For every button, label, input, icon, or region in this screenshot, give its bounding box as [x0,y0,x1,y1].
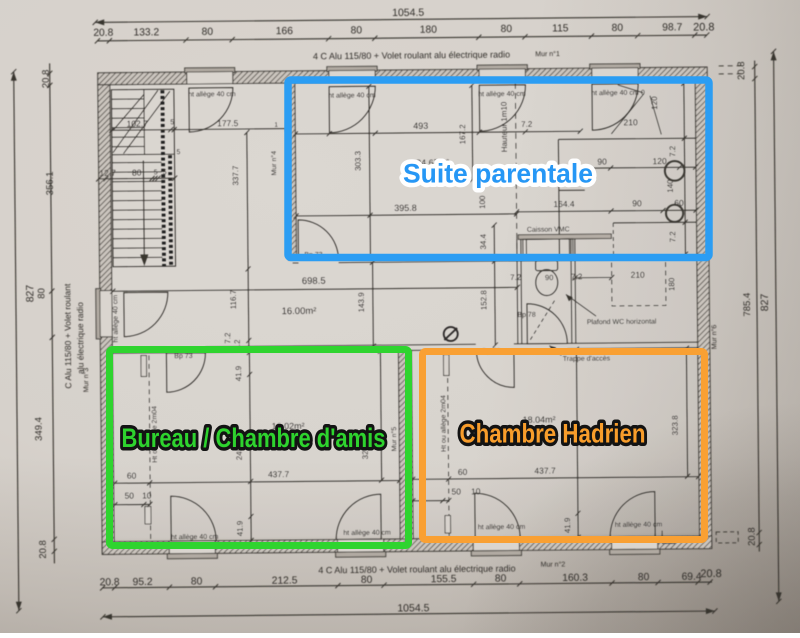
svg-text:12.7: 12.7 [99,168,116,178]
svg-text:Hauteur 1m10: Hauteur 1m10 [499,101,508,152]
svg-text:Mur n°5: Mur n°5 [390,427,398,452]
svg-text:120: 120 [652,156,667,166]
svg-text:395.8: 395.8 [394,203,417,213]
svg-text:ht allège 40 cm: ht allège 40 cm [591,90,639,97]
svg-text:alu électrique radio: alu électrique radio [75,302,86,374]
svg-text:167.2: 167.2 [458,124,467,145]
svg-text:60: 60 [127,471,137,481]
svg-text:102.7: 102.7 [127,118,149,128]
svg-text:80: 80 [36,288,47,299]
svg-text:80: 80 [351,25,363,36]
svg-text:Mur n°4: Mur n°4 [270,151,278,176]
svg-text:80: 80 [191,576,203,587]
svg-text:Mur n°2: Mur n°2 [541,560,566,568]
svg-text:20.8: 20.8 [693,21,715,33]
svg-text:437.7: 437.7 [268,469,290,479]
svg-text:Trappe d'accès: Trappe d'accès [563,355,611,362]
svg-text:ht allège 40 cm: ht allège 40 cm [188,91,236,98]
svg-text:34.4: 34.4 [479,233,488,249]
svg-text:80: 80 [495,573,507,584]
svg-text:356.1: 356.1 [45,171,56,195]
svg-text:7.2: 7.2 [668,231,677,243]
svg-text:5: 5 [154,169,158,176]
svg-text:155.5: 155.5 [431,574,457,585]
svg-text:323.8: 323.8 [671,415,680,436]
svg-text:95.2: 95.2 [133,577,153,588]
svg-text:50: 50 [451,486,461,496]
svg-text:303.3: 303.3 [353,150,362,171]
svg-text:7.2: 7.2 [223,332,232,344]
svg-text:80: 80 [202,27,214,38]
svg-text:180: 180 [420,25,438,36]
svg-text:493: 493 [413,121,428,131]
svg-text:4 C Alu 115/80 + Volet roulant: 4 C Alu 115/80 + Volet roulant alu élect… [313,49,510,61]
svg-text:ht allège 40 cm: ht allège 40 cm [615,521,663,528]
svg-text:1: 1 [274,122,278,129]
svg-text:90: 90 [597,157,607,167]
svg-text:Suite parentale: Suite parentale [403,159,593,189]
svg-text:210: 210 [623,117,638,127]
svg-text:80: 80 [132,167,142,177]
svg-text:20.8: 20.8 [41,70,52,89]
svg-text:69.4: 69.4 [682,572,702,583]
svg-text:C Alu 115/80 + Volet roulant: C Alu 115/80 + Volet roulant [62,283,73,389]
svg-text:Bp 73: Bp 73 [174,353,192,360]
svg-text:133.2: 133.2 [133,27,159,38]
svg-text:90: 90 [545,273,553,282]
svg-text:212.5: 212.5 [272,575,298,586]
svg-text:98.7: 98.7 [662,22,682,33]
svg-text:5: 5 [176,149,180,156]
svg-text:90: 90 [632,198,642,208]
svg-text:785.4: 785.4 [742,293,753,317]
svg-text:Bureau / Chambre d'amis: Bureau / Chambre d'amis [122,423,386,453]
svg-text:180: 180 [667,277,676,291]
svg-text:10: 10 [471,486,481,496]
svg-text:100: 100 [478,195,487,209]
svg-text:ht allège 40 cm: ht allège 40 cm [171,534,219,541]
svg-text:Plafond WC horizontal: Plafond WC horizontal [587,319,657,327]
svg-text:5: 5 [163,169,167,176]
svg-text:10: 10 [142,490,152,500]
svg-text:80: 80 [612,23,624,34]
svg-text:Ht ou allège 2m04: Ht ou allège 2m04 [440,395,448,452]
svg-text:Caisson VMC: Caisson VMC [527,226,570,233]
svg-text:120: 120 [650,96,659,110]
svg-text:80: 80 [638,572,650,583]
svg-text:80: 80 [361,575,373,586]
svg-text:ht allège 40 cm: ht allège 40 cm [478,524,526,531]
svg-text:143.9: 143.9 [357,292,366,313]
svg-text:337.7: 337.7 [231,165,240,186]
svg-text:50: 50 [124,491,134,501]
svg-text:7.2: 7.2 [668,145,677,157]
svg-text:164.4: 164.4 [553,199,575,209]
svg-text:437.7: 437.7 [534,466,556,476]
svg-text:116.7: 116.7 [229,289,238,309]
svg-text:160.3: 160.3 [562,573,588,584]
svg-text:41.9: 41.9 [234,365,243,381]
svg-text:60: 60 [458,467,468,477]
svg-text:Mur n°3: Mur n°3 [82,368,90,393]
svg-text:41.9: 41.9 [563,517,572,533]
svg-text:16.00m²: 16.00m² [282,306,317,317]
svg-text:152.8: 152.8 [479,290,488,311]
svg-text:827: 827 [24,285,36,303]
svg-text:ht allège 40 cm: ht allège 40 cm [478,91,526,98]
svg-text:Bp 78: Bp 78 [517,312,535,319]
svg-text:20.8: 20.8 [100,577,120,588]
svg-text:1054.5: 1054.5 [397,602,429,614]
svg-text:41.9: 41.9 [236,520,245,536]
svg-text:1054.5: 1054.5 [392,7,424,19]
svg-text:349.4: 349.4 [34,417,45,441]
svg-text:827: 827 [759,294,771,312]
svg-text:210: 210 [631,270,646,280]
svg-text:698.5: 698.5 [302,276,326,287]
svg-text:80: 80 [501,24,513,35]
svg-text:20.8: 20.8 [93,28,113,39]
svg-text:115: 115 [552,23,569,34]
svg-text:20.8: 20.8 [38,540,49,559]
svg-text:20.8: 20.8 [736,61,747,80]
svg-text:166: 166 [276,26,294,37]
svg-text:20.8: 20.8 [700,568,722,580]
svg-text:Mur n°1: Mur n°1 [535,50,560,58]
svg-text:7.2: 7.2 [510,273,522,282]
svg-text:5: 5 [170,119,174,126]
svg-text:20.8: 20.8 [747,527,758,546]
svg-text:0: 0 [641,90,645,97]
svg-text:ht allège 40 cm: ht allège 40 cm [343,530,391,537]
svg-text:ht allège 40 cm: ht allège 40 cm [112,295,119,343]
svg-text:Mur n°6: Mur n°6 [710,325,718,350]
svg-text:Chambre Hadrien: Chambre Hadrien [460,419,646,449]
svg-text:7.2: 7.2 [521,120,533,129]
svg-text:4 C Alu 115/80 + Volet roulant: 4 C Alu 115/80 + Volet roulant alu élect… [318,563,515,575]
